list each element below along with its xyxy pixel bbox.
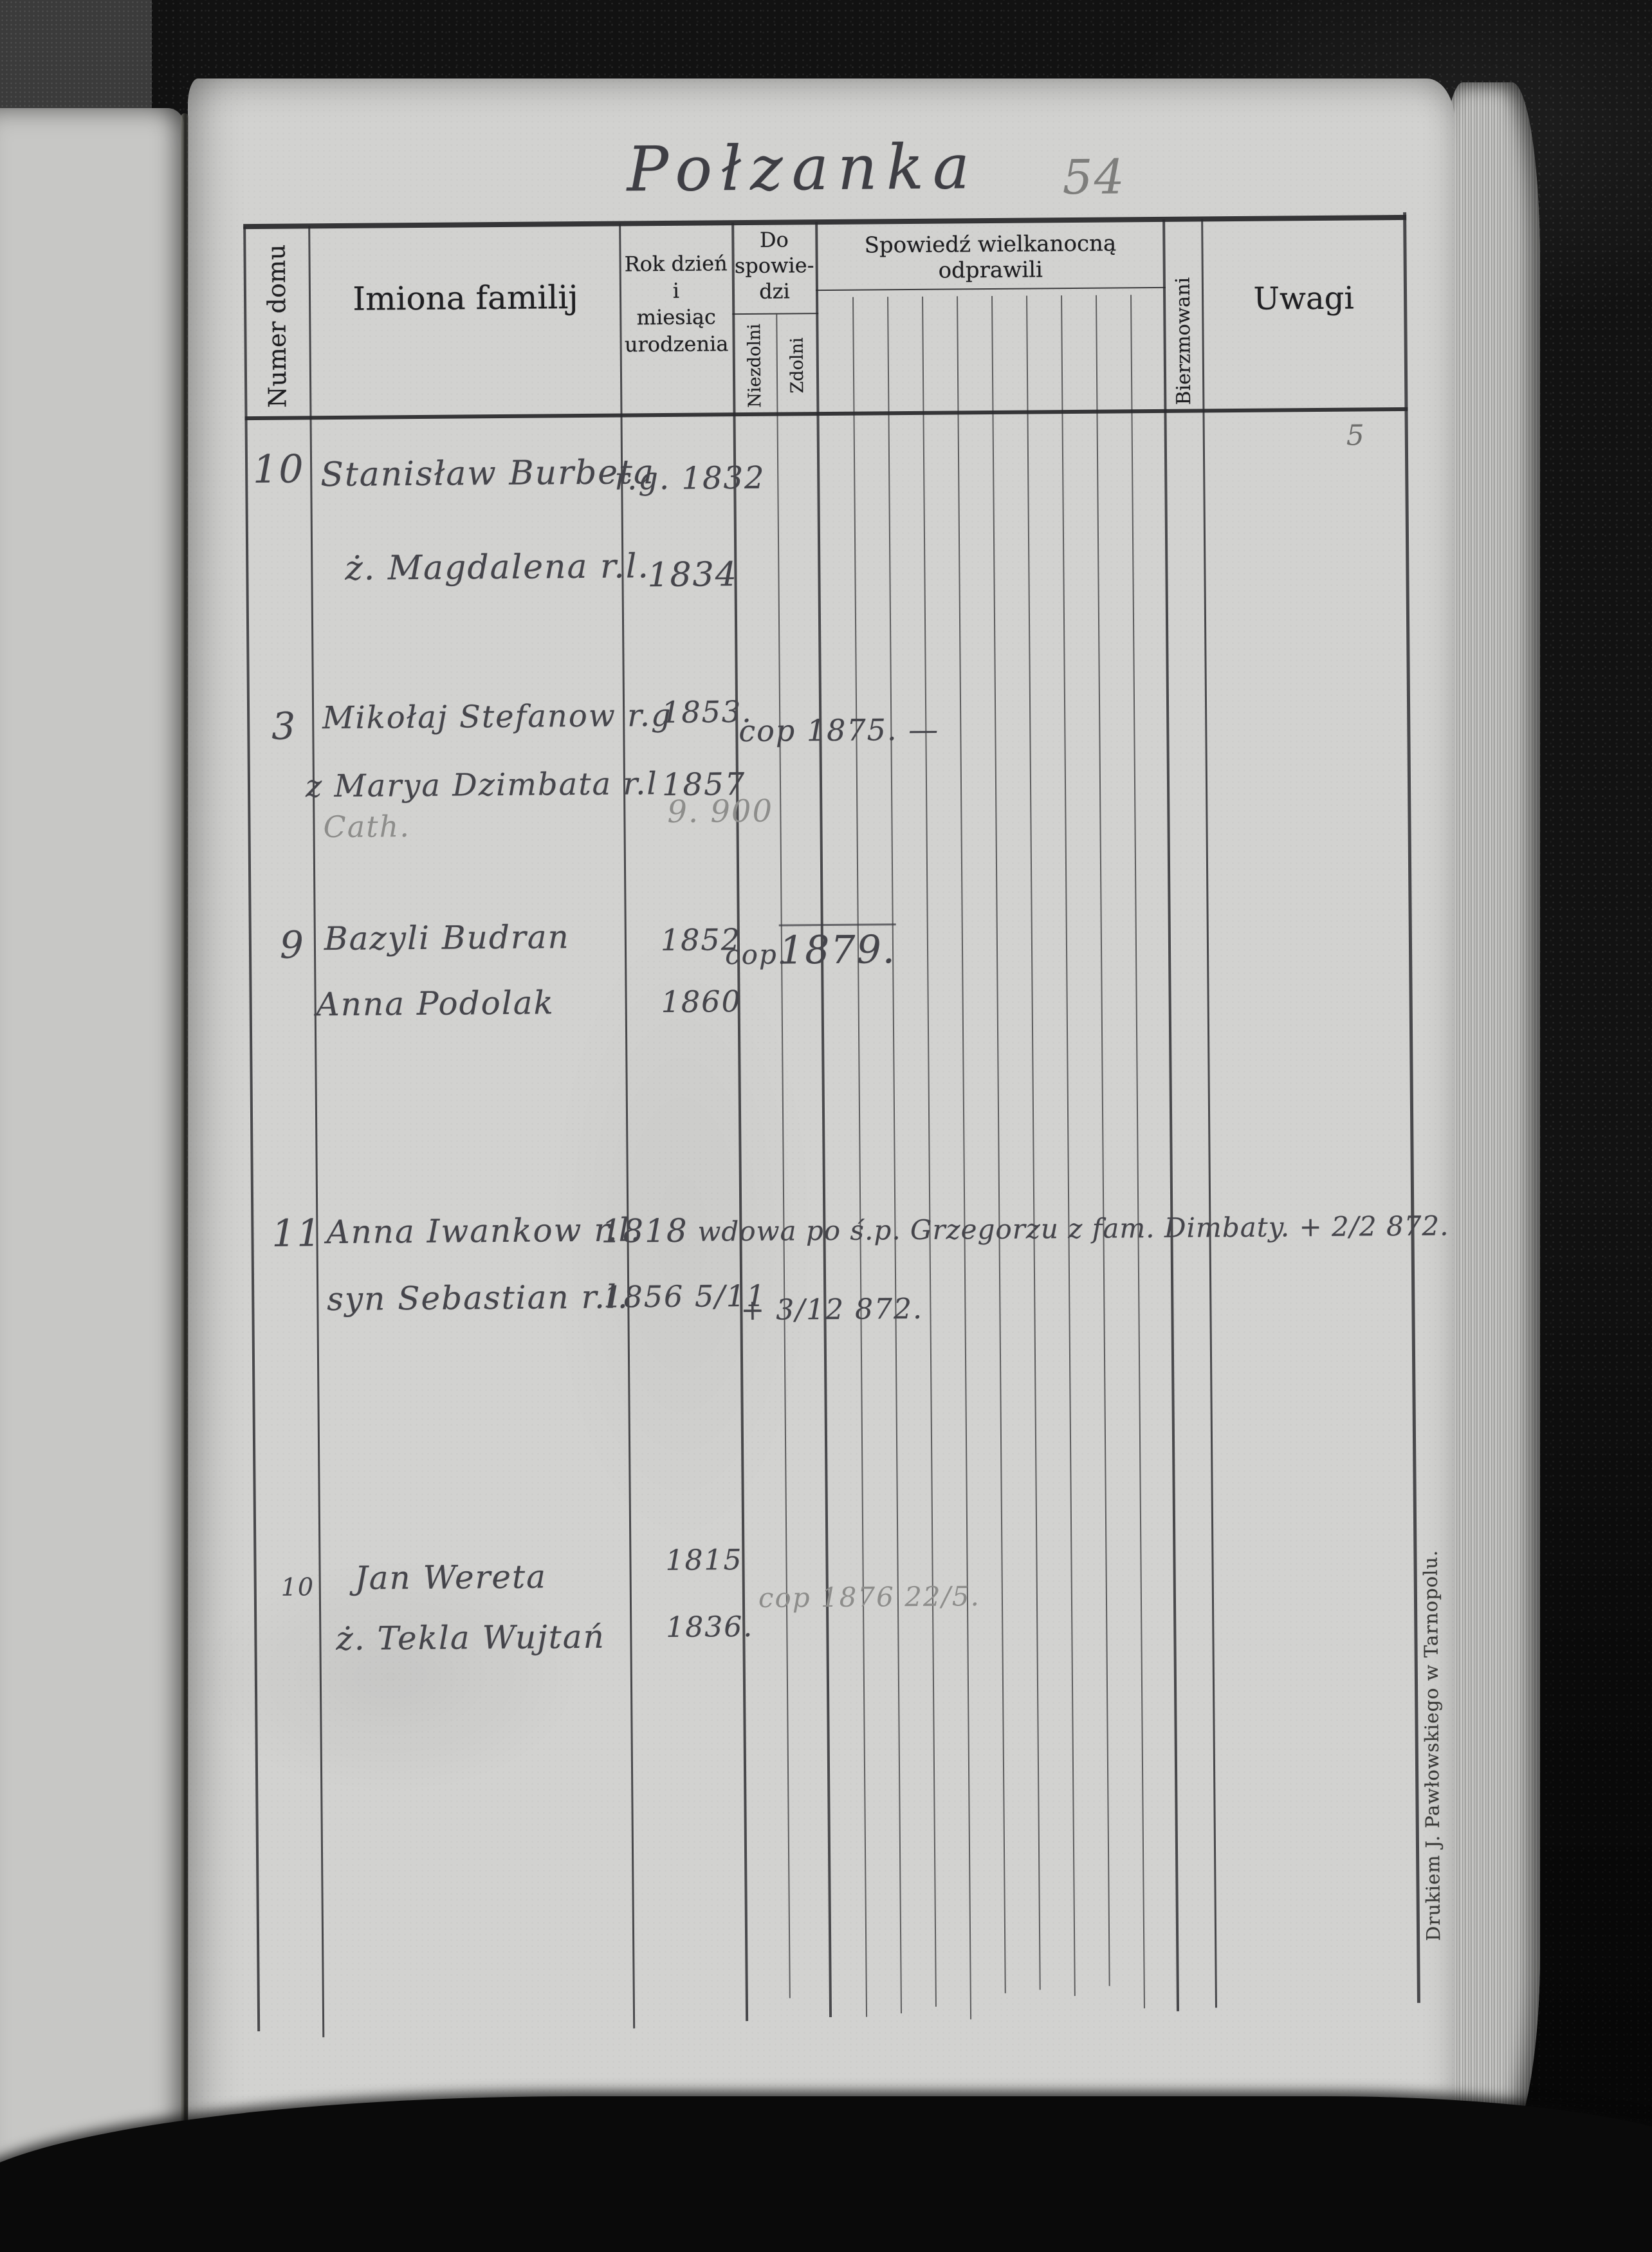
spowiedz-subline-9 [1130,295,1145,2008]
do-spowiedzi-underline [732,313,818,315]
table-top-border [243,215,1406,229]
entry-marriage-year: 1879. [779,923,896,973]
spowiedz-subline-3 [922,297,937,2007]
entry-name-line: Stanisław Burbeta [320,453,655,494]
col-line-spowiedz-bierzmowani [1162,219,1179,2011]
entry-name-line: Mikołaj Stefanow r.g [322,697,672,736]
entry-birth-year: 1860 [661,984,741,1019]
entry-pencil-note: cop 1876 22/5. [758,1580,980,1614]
page-content: Połzanka 54 Numer domu Imiona familij R [0,0,1652,2252]
entry-pencil-note: Cath. [323,809,410,844]
entry-name-line: ż. Tekla Wujtań [336,1618,605,1657]
entry-pencil-note: 9. 900 [667,793,773,830]
shadow-below-book [0,2096,1652,2252]
printer-imprint: Drukiem J. Pawłowskiego w Tarnopolu. [1415,1533,1448,1958]
spowiedz-underline [816,287,1166,291]
column-header-uwagi: Uwagi [1204,280,1404,317]
column-header-do-spowiedzi: Do spowie- dzi [733,226,816,304]
column-header-niezdolni: Niezdolni [733,317,775,414]
page-number: 54 [1062,149,1126,205]
spowiedz-subline-4 [957,296,971,2019]
col-line-niezdolni-zdolni [776,315,791,1998]
column-header-numer-domu: Numer domu [244,235,309,416]
entry-death-note: + 3/12 872. [740,1293,923,1327]
col-line-numer-imiona [308,226,324,2037]
entry-house-number: 3 [271,704,297,748]
spowiedz-subline-2 [887,297,902,2013]
spowiedz-subline-8 [1096,295,1110,1986]
entry-birth-year: 1818 [601,1212,688,1250]
entry-name-line: Bazyli Budran [324,918,570,957]
spowiedz-subline-6 [1026,296,1041,1990]
entry-name-line: Anna Iwankow r.l. [326,1211,642,1251]
entry-house-number: 10 [281,1573,315,1601]
entry-house-number: 11 [271,1211,322,1255]
uwagi-pencil-mark: 5 [1346,419,1366,452]
entry-name-line: z Marya Dzimbata r.l [306,766,658,804]
col-line-do-spowiedz [815,222,832,2017]
entry-name-line: Jan Wereta [354,1558,547,1596]
column-header-rok-urodzenia: Rok dzień i miesiąc urodzenia [620,250,731,358]
col-line-bierzmowani-uwagi [1201,219,1217,2007]
column-header-bierzmowani: Bierzmowani [1165,272,1203,409]
entry-house-number: 10 [253,447,305,492]
entry-birth-year: r.g. 1832 [614,460,766,497]
book-photo: Połzanka 54 Numer domu Imiona familij R [0,0,1652,2252]
header-bottom-border [244,407,1408,420]
entry-birth-year: 1815 [665,1544,742,1577]
entry-name-line: syn Sebastian r.l. [327,1278,629,1318]
village-title: Połzanka [627,131,979,205]
table-left-border [243,226,260,2031]
spowiedz-subline-7 [1061,295,1076,1996]
column-header-spowiedz: Spowiedź wielkanocną odprawili [817,230,1164,284]
entry-widow-note: wdowa po ś.p. Grzegorzu z fam. Dimbaty. … [697,1210,1449,1247]
entry-marriage-note: cop. [725,939,787,971]
entry-birth-year: 1836. [666,1611,753,1644]
entry-name-line: ż. Magdalena r.l. [345,547,650,588]
entry-marriage-note: cop 1875. — [739,712,939,748]
column-header-zdolni: Zdolni [777,317,816,413]
entry-birth-year: 1834 [647,555,738,595]
spowiedz-subline-1 [852,297,867,2017]
entry-name-line: Anna Podolak [316,984,555,1023]
entry-house-number: 9 [280,923,305,966]
column-header-imiona-familij: Imiona familij [313,279,618,318]
spowiedz-subline-5 [991,296,1006,1993]
